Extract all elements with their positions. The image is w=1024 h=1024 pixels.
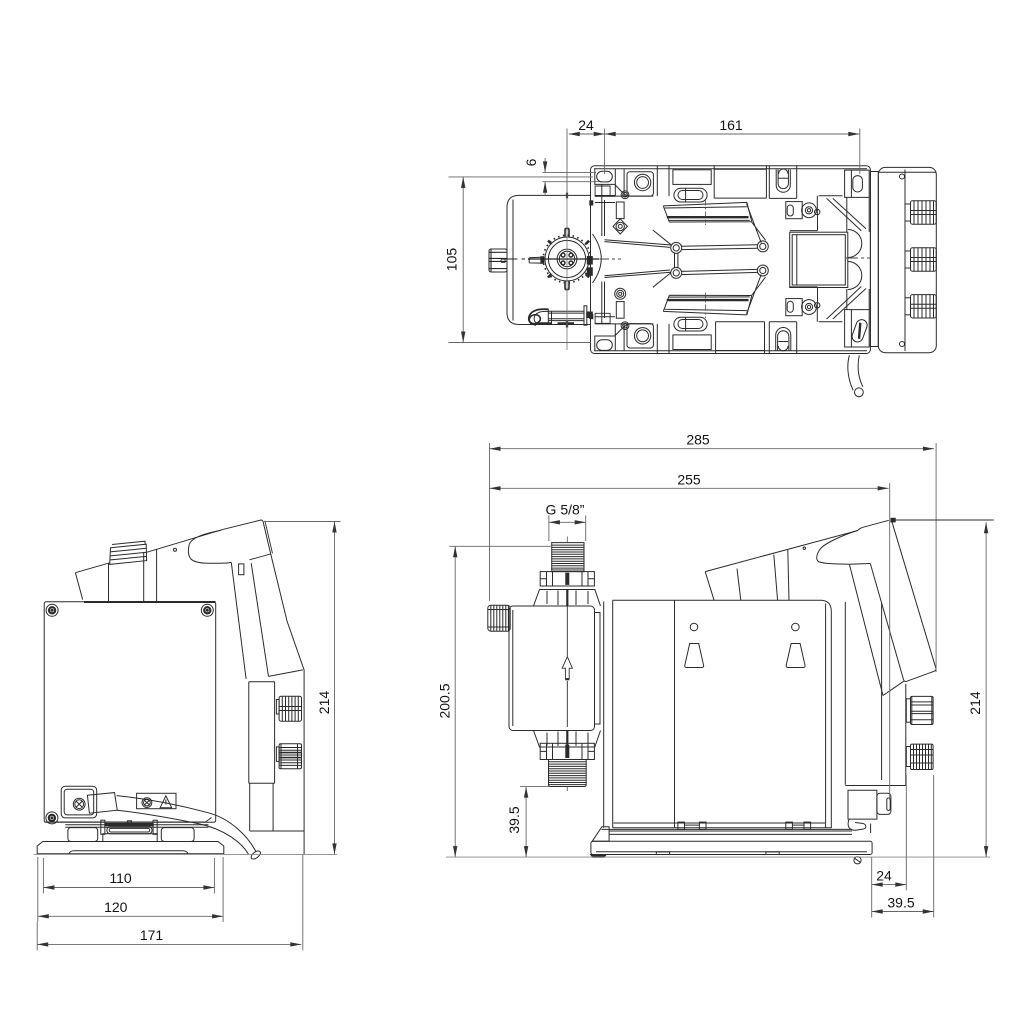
svg-text:285: 285 xyxy=(686,432,710,448)
svg-text:214: 214 xyxy=(967,691,983,715)
svg-text:105: 105 xyxy=(444,248,460,272)
svg-text:G 5/8”: G 5/8” xyxy=(546,502,585,518)
svg-text:214: 214 xyxy=(316,691,332,715)
svg-text:39.5: 39.5 xyxy=(887,895,914,911)
svg-text:110: 110 xyxy=(109,870,132,886)
svg-text:39.5: 39.5 xyxy=(506,806,522,833)
svg-text:120: 120 xyxy=(104,899,128,915)
svg-text:24: 24 xyxy=(876,868,892,884)
svg-text:161: 161 xyxy=(719,117,743,133)
svg-text:6: 6 xyxy=(523,158,539,166)
svg-text:255: 255 xyxy=(677,472,701,488)
svg-text:24: 24 xyxy=(578,117,594,133)
svg-text:171: 171 xyxy=(140,927,164,943)
svg-text:200.5: 200.5 xyxy=(437,683,453,718)
